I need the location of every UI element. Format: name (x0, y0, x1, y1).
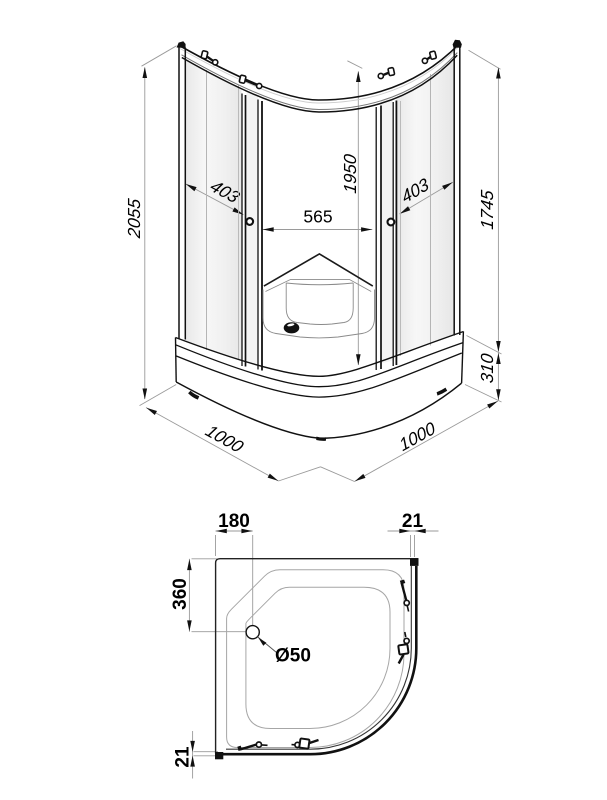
svg-text:565: 565 (303, 207, 332, 227)
svg-text:21: 21 (402, 511, 424, 532)
svg-text:1950: 1950 (340, 153, 360, 195)
svg-text:21: 21 (173, 746, 194, 768)
svg-text:310: 310 (477, 352, 497, 384)
svg-text:Ø50: Ø50 (275, 646, 311, 667)
svg-text:180: 180 (218, 511, 250, 532)
svg-text:1745: 1745 (477, 189, 497, 231)
svg-text:360: 360 (170, 578, 191, 610)
svg-text:2055: 2055 (124, 197, 144, 240)
